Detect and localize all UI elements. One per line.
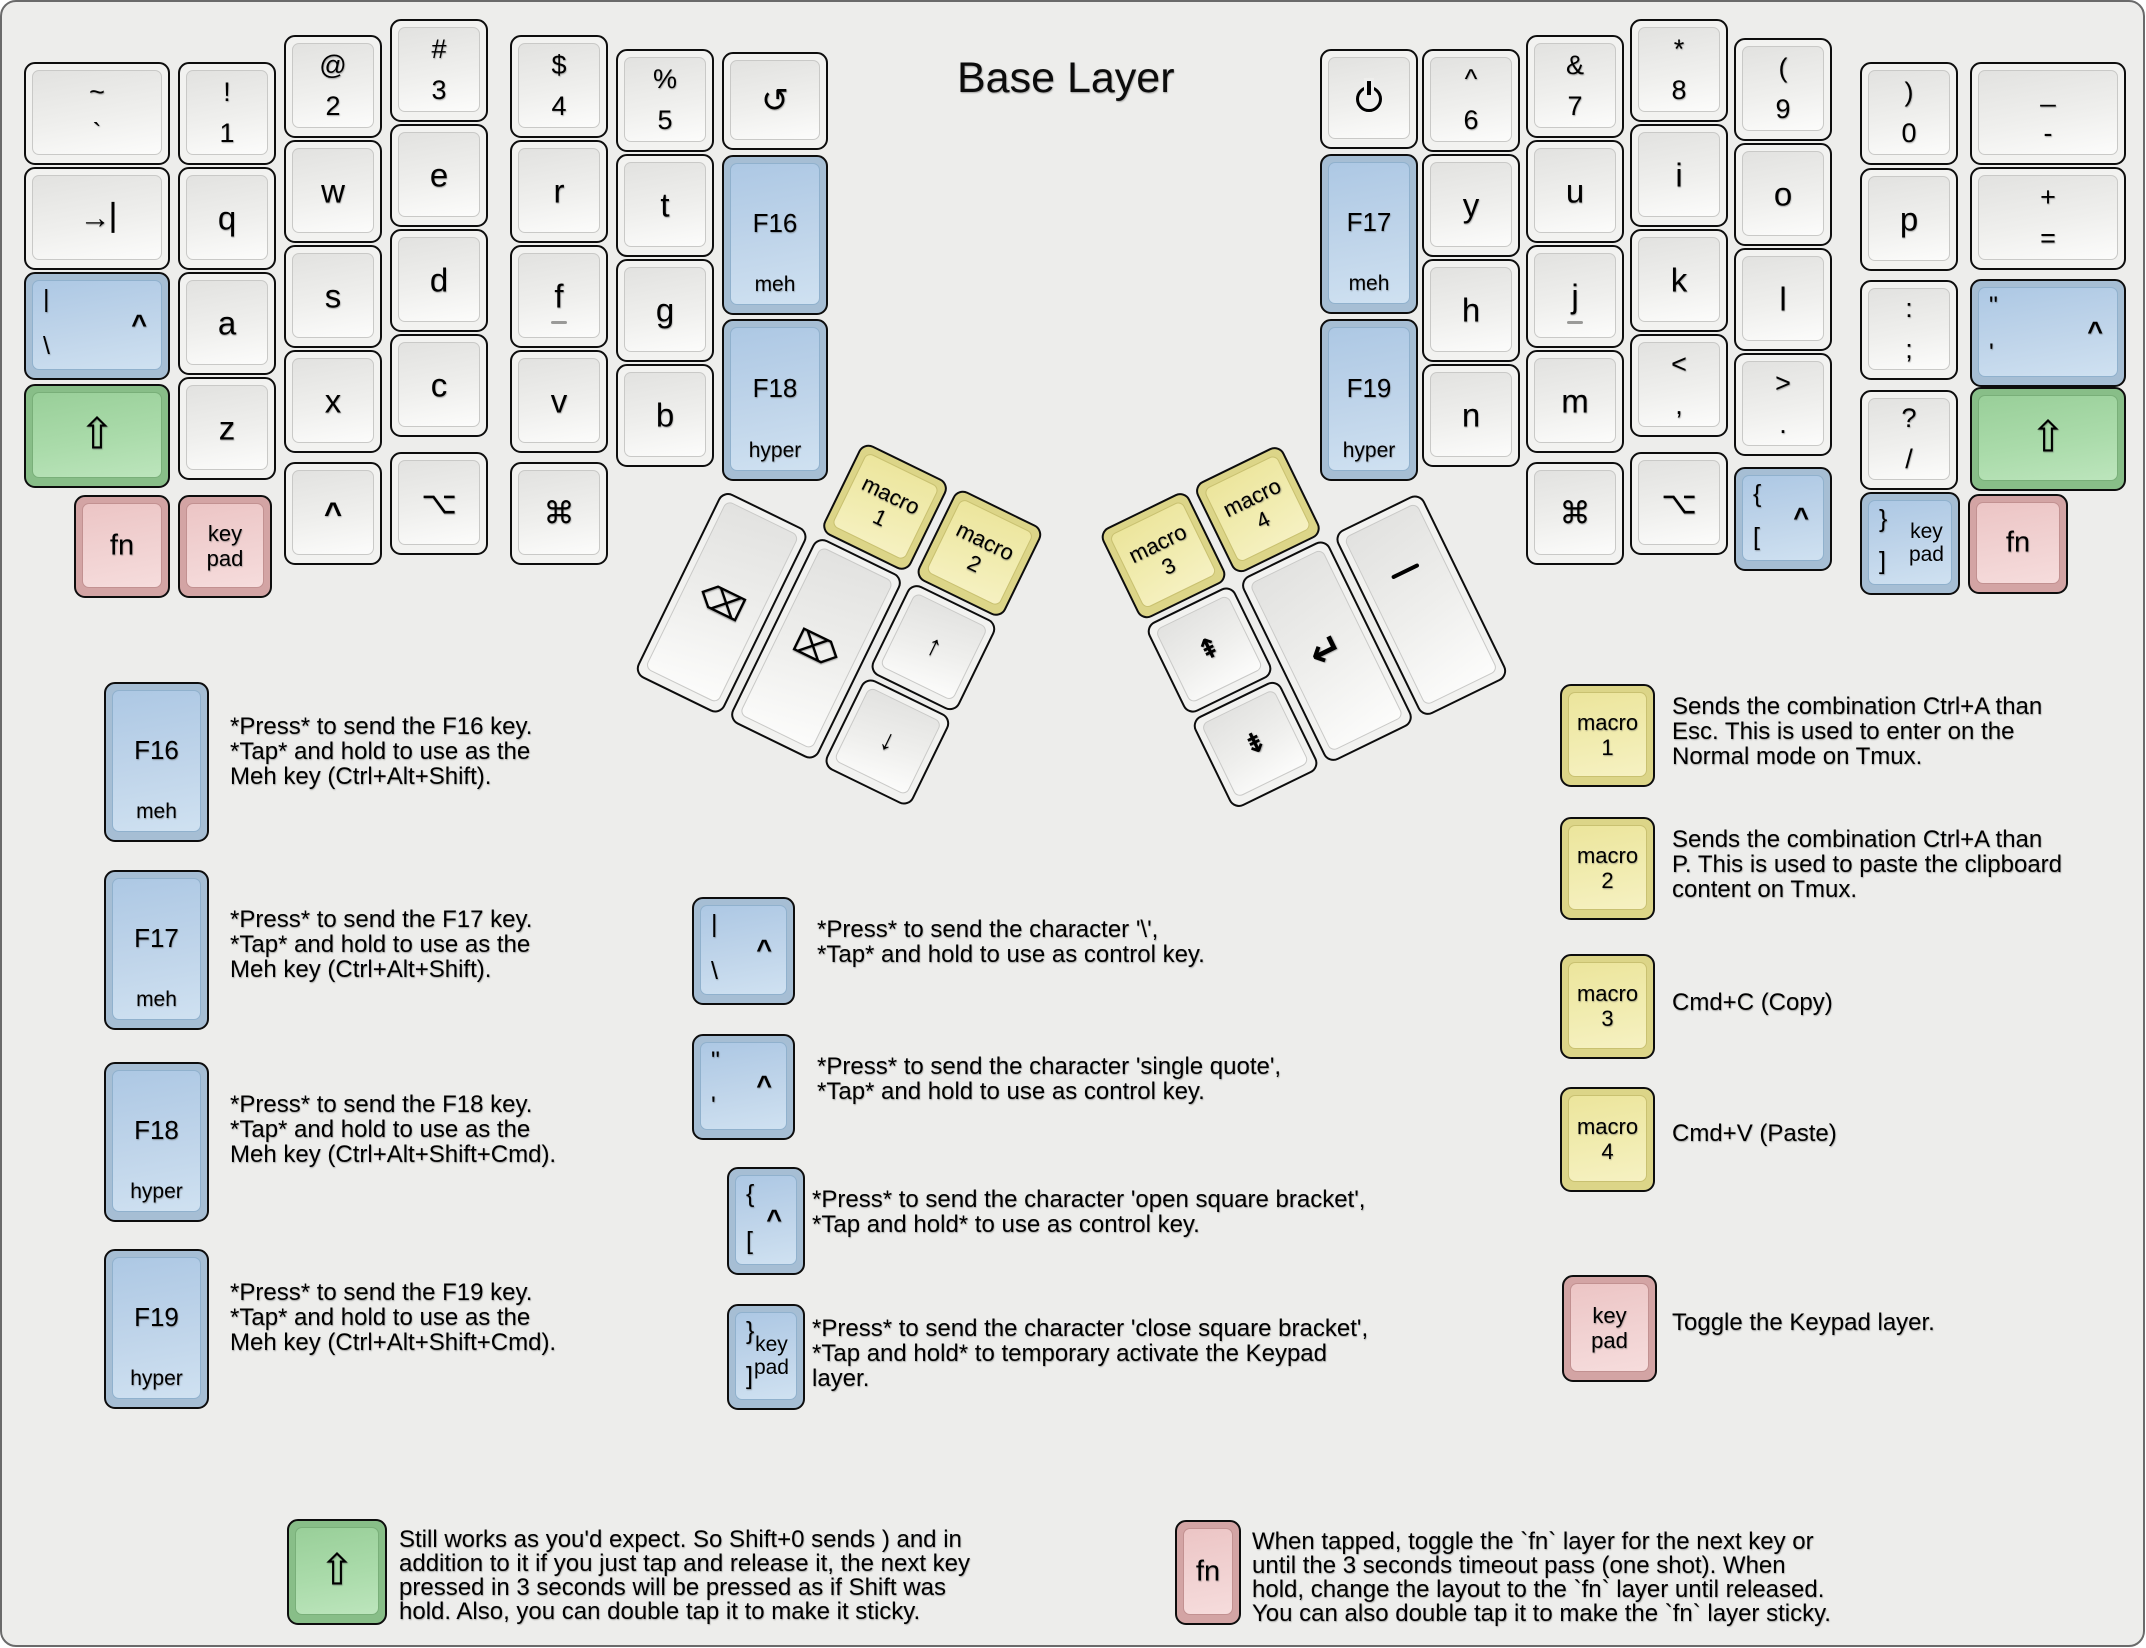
key-2-base-label: 2	[325, 86, 340, 127]
key-9: (9	[1734, 38, 1832, 141]
key-r: r	[510, 140, 608, 243]
key-j: j	[1526, 245, 1624, 348]
key-d-cap: d	[398, 237, 480, 322]
key-macro-4-labels: macro4	[1204, 455, 1310, 562]
key-grave: ~`	[24, 62, 170, 165]
legend-key-f16-sub-label: meh	[113, 800, 200, 824]
key-h-label: h	[1462, 293, 1480, 326]
key-t: t	[616, 154, 714, 257]
key-f17-cap: F17meh	[1328, 162, 1410, 304]
key-semicolon-cap: :;	[1868, 288, 1950, 370]
legend-text-line: *Press* to send the F16 key.	[230, 714, 532, 739]
key-option-right-label: ⌥	[1661, 487, 1697, 518]
key-minus-shift-label: _	[2040, 72, 2055, 113]
legend-key-macro-4-label-0: macro	[1577, 1114, 1638, 1139]
key-5: %5	[616, 49, 714, 152]
legend-text-line: Sends the combination Ctrl+A than	[1672, 694, 2042, 719]
legend-key-bracket-close-keypad-cap: }]keypad	[735, 1312, 797, 1400]
legend-key-keypad-label-0: key	[1592, 1303, 1626, 1328]
key-f16: F16meh	[722, 155, 828, 315]
key-quote-control-control-label: ^	[2087, 319, 2103, 346]
key-command-left: ⌘	[510, 462, 608, 565]
key-u-cap: u	[1534, 148, 1616, 233]
key-j-cap: j	[1534, 253, 1616, 338]
legend-text-line: Meh key (Ctrl+Alt+Shift+Cmd).	[230, 1330, 556, 1355]
key-equals-base-label: =	[2040, 218, 2056, 259]
key-c-cap: c	[398, 342, 480, 427]
legend-key-backslash-control: |\^	[692, 897, 795, 1005]
legend-key-shift: ⇧	[287, 1519, 387, 1625]
key-bracket-close-keypad-side-label: keypad	[1909, 520, 1944, 566]
key-option-left-label: ⌥	[421, 487, 457, 518]
key-e-label: e	[430, 158, 448, 191]
key-f18-label: F18	[753, 375, 798, 401]
key-keypad-left-label-1: pad	[207, 546, 244, 571]
legend-text-line: *Press* to send the F19 key.	[230, 1280, 556, 1305]
legend-text-line: When tapped, toggle the `fn` layer for t…	[1252, 1530, 1831, 1554]
key-bracket-close-keypad: }]keypad	[1860, 492, 1960, 595]
legend-text-line: Cmd+C (Copy)	[1672, 990, 1833, 1015]
legend-key-macro-4-cap: macro4	[1568, 1095, 1647, 1182]
key-c: c	[390, 334, 488, 437]
legend-key-keypad-label-1: pad	[1591, 1328, 1628, 1353]
key-1: !1	[178, 62, 276, 165]
legend-key-f16: F16meh	[104, 682, 209, 842]
key-macro-1-label-1: 1	[869, 504, 891, 532]
key-equals-cap: +=	[1978, 175, 2118, 260]
key-macro-2-label-0: macro	[952, 516, 1018, 565]
key-quote-control-cap: "'^	[1978, 287, 2118, 377]
tab-icon: →	[80, 201, 115, 232]
key-m: m	[1526, 350, 1624, 453]
legend-text-line: content on Tmux.	[1672, 877, 2062, 902]
key-undo-cap: ↺	[730, 60, 820, 140]
legend-key-f16-cap: F16meh	[112, 690, 201, 832]
key-comma-base-label: ,	[1675, 385, 1683, 426]
legend-key-shift-cap: ⇧	[295, 1527, 379, 1615]
key-page-up-label: ⇞	[1192, 631, 1225, 666]
legend-text-line: Toggle the Keypad layer.	[1672, 1310, 1935, 1335]
legend-key-macro-3-label-0: macro	[1577, 981, 1638, 1006]
key-t-cap: t	[624, 162, 706, 247]
key-i-cap: i	[1638, 132, 1720, 217]
key-macro-4-cap: macro4	[1203, 454, 1312, 563]
key-bracket-close-keypad-cap: }]keypad	[1868, 500, 1952, 585]
legend-key-macro-1-cap: macro1	[1568, 692, 1647, 777]
key-e-cap: e	[398, 132, 480, 217]
key-b-cap: b	[624, 372, 706, 457]
legend-key-macro-1: macro1	[1560, 684, 1655, 787]
key-v-label: v	[551, 384, 568, 417]
key-bracket-close-keypad-base-label: ]	[1879, 549, 1886, 574]
key-7: &7	[1526, 35, 1624, 138]
key-4-shift-label: $	[551, 45, 566, 86]
key-undo: ↺	[722, 52, 828, 150]
key-r-cap: r	[518, 148, 600, 233]
key-j-label: j	[1571, 279, 1578, 312]
key-delete-label: ⌦	[788, 623, 844, 673]
key-6-shift-label: ^	[1465, 59, 1478, 100]
legend-key-f18-sub-label: hyper	[113, 1180, 200, 1204]
key-6-labels: ^6	[1431, 58, 1511, 141]
key-bracket-open-control: {[^	[1734, 467, 1832, 571]
key-x-label: x	[325, 384, 342, 417]
key-page-down-label: ⇟	[1238, 726, 1271, 761]
key-macro-3-labels: macro3	[1110, 502, 1216, 609]
key-o-cap: o	[1742, 151, 1824, 236]
key-n: n	[1422, 364, 1520, 467]
key-period-base-label: .	[1779, 404, 1787, 445]
key-period-shift-label: >	[1775, 363, 1791, 404]
key-comma-cap: <,	[1638, 342, 1720, 427]
legend-key-quote-control-shift-label: "	[711, 1049, 720, 1074]
key-g-label: g	[656, 293, 674, 326]
key-backslash-control-shift-label: |	[43, 287, 50, 312]
legend-key-f16-description: *Press* to send the F16 key.*Tap* and ho…	[230, 714, 532, 789]
key-2: @2	[284, 35, 382, 138]
key-8-cap: *8	[1638, 27, 1720, 112]
key-minus-cap: _-	[1978, 70, 2118, 155]
key-2-cap: @2	[292, 43, 374, 128]
legend-key-backslash-control-description: *Press* to send the character '\',*Tap* …	[817, 917, 1205, 967]
legend-text-line: *Tap* and hold to use as the	[230, 1117, 556, 1142]
key-w: w	[284, 140, 382, 243]
key-1-shift-label: !	[223, 72, 231, 113]
key-d-label: d	[430, 263, 448, 296]
space-icon	[1390, 563, 1419, 580]
key-v-cap: v	[518, 358, 600, 443]
key-q-cap: q	[186, 175, 268, 260]
key-x: x	[284, 350, 382, 453]
legend-key-macro-1-label-1: 1	[1601, 735, 1613, 760]
legend-key-bracket-open-control-cap: {[^	[735, 1175, 797, 1265]
key-y-label: y	[1463, 188, 1480, 221]
key-fn-right: fn	[1968, 494, 2068, 594]
key-z-cap: z	[186, 385, 268, 470]
key-0-base-label: 0	[1901, 113, 1916, 154]
key-4-cap: $4	[518, 43, 600, 128]
legend-key-bracket-open-control-shift-label: {	[746, 1182, 754, 1207]
legend-key-f19-description: *Press* to send the F19 key.*Tap* and ho…	[230, 1280, 556, 1355]
key-1-base-label: 1	[219, 113, 234, 154]
key-f19-cap: F19hyper	[1328, 327, 1410, 471]
key-f16-label: F16	[753, 210, 798, 236]
key-2-shift-label: @	[319, 45, 346, 86]
key-o-label: o	[1774, 177, 1792, 210]
key-f16-sub-label: meh	[731, 273, 819, 297]
key-a-label: a	[218, 306, 236, 339]
key-7-shift-label: &	[1566, 45, 1584, 86]
key-keypad-left-cap: keypad	[186, 503, 264, 588]
key-7-labels: &7	[1535, 44, 1615, 127]
key-equals-shift-label: +	[2040, 177, 2056, 218]
key-comma: <,	[1630, 334, 1728, 437]
key-9-base-label: 9	[1775, 89, 1790, 130]
key-macro-4-label-1: 4	[1252, 506, 1274, 534]
key-9-cap: (9	[1742, 46, 1824, 131]
key-s: s	[284, 245, 382, 348]
key-4: $4	[510, 35, 608, 138]
legend-key-bracket-close-keypad: }]keypad	[727, 1304, 805, 1410]
legend-key-macro-2-label-0: macro	[1577, 843, 1638, 868]
key-control-left-label: ^	[324, 497, 342, 528]
key-f17: F17meh	[1320, 154, 1418, 314]
key-macro-1-cap: macro1	[831, 452, 940, 561]
key-period: >.	[1734, 353, 1832, 456]
key-control-left-cap: ^	[292, 470, 374, 555]
legend-key-quote-control-cap: "'^	[700, 1042, 787, 1130]
key-semicolon-labels: :;	[1869, 289, 1949, 369]
key-equals-labels: +=	[1979, 176, 2117, 259]
key-power	[1320, 49, 1418, 149]
key-grave-cap: ~`	[32, 70, 162, 155]
legend-key-keypad: keypad	[1562, 1275, 1657, 1382]
legend-key-backslash-control-cap: |\^	[700, 905, 787, 995]
key-fn-left-label: fn	[110, 531, 134, 560]
key-command-right: ⌘	[1526, 462, 1624, 565]
key-l-label: l	[1779, 282, 1786, 315]
key-7-base-label: 7	[1567, 86, 1582, 127]
key-3-labels: #3	[399, 28, 479, 111]
key-backslash-control-base-label: \	[43, 334, 50, 359]
key-8-labels: *8	[1639, 28, 1719, 111]
key-slash: ?/	[1860, 390, 1958, 490]
key-semicolon-shift-label: :	[1905, 288, 1913, 329]
legend-key-f18: F18hyper	[104, 1062, 209, 1222]
key-p-label: p	[1900, 202, 1918, 235]
legend-key-f19: F19hyper	[104, 1249, 209, 1409]
key-p: p	[1860, 168, 1958, 271]
key-equals: +=	[1970, 167, 2126, 270]
legend-key-f18-description: *Press* to send the F18 key.*Tap* and ho…	[230, 1092, 556, 1167]
key-5-cap: %5	[624, 57, 706, 142]
legend-key-f17-cap: F17meh	[112, 878, 201, 1020]
key-keypad-left: keypad	[178, 495, 272, 598]
key-option-left-cap: ⌥	[398, 460, 480, 545]
key-z: z	[178, 377, 276, 480]
page-title: Base Layer	[957, 54, 1175, 103]
key-5-base-label: 5	[657, 100, 672, 141]
key-minus-base-label: -	[2044, 113, 2053, 154]
legend-key-macro-1-description: Sends the combination Ctrl+A thanEsc. Th…	[1672, 694, 2042, 769]
legend-key-f19-cap: F19hyper	[112, 1257, 201, 1399]
key-right-shift-cap: ⇧	[1978, 395, 2118, 481]
legend-text-line: Still works as you'd expect. So Shift+0 …	[399, 1528, 970, 1552]
key-4-base-label: 4	[551, 86, 566, 127]
key-h: h	[1422, 259, 1520, 362]
legend-text-line: *Press* to send the character 'close squ…	[812, 1316, 1368, 1341]
legend-text-line: Normal mode on Tmux.	[1672, 744, 2042, 769]
key-h-cap: h	[1430, 267, 1512, 352]
key-a-cap: a	[186, 280, 268, 365]
legend-key-bracket-open-control-control-label: ^	[766, 1207, 782, 1234]
legend-key-macro-4-label-1: 4	[1601, 1139, 1613, 1164]
legend-key-bracket-close-keypad-side-label: keypad	[754, 1333, 789, 1379]
legend-key-backslash-control-shift-label: |	[711, 912, 718, 937]
key-left-shift-cap: ⇧	[32, 392, 162, 478]
key-macro-3-cap: macro3	[1109, 500, 1218, 609]
legend-key-backslash-control-base-label: \	[711, 959, 718, 984]
key-w-label: w	[321, 174, 345, 207]
legend-key-macro-2-description: Sends the combination Ctrl+A thanP. This…	[1672, 827, 2062, 902]
legend-text-line: *Tap and hold* to use as control key.	[812, 1212, 1365, 1237]
key-u: u	[1526, 140, 1624, 243]
key-keypad-left-labels: keypad	[187, 504, 263, 587]
legend-key-keypad-description: Toggle the Keypad layer.	[1672, 1310, 1935, 1335]
legend-key-macro-4-description: Cmd+V (Paste)	[1672, 1121, 1837, 1146]
key-arrow-down-cap: ↓	[833, 687, 942, 796]
legend-key-macro-1-label-0: macro	[1577, 710, 1638, 735]
key-f19-sub-label: hyper	[1329, 439, 1409, 463]
key-s-label: s	[325, 279, 342, 312]
key-arrow-down-label: ↓	[875, 725, 901, 757]
key-f: f	[510, 245, 608, 348]
key-fn-right-cap: fn	[1976, 502, 2060, 584]
key-control-left: ^	[284, 462, 382, 565]
key-macro-1-label-0: macro	[858, 470, 924, 519]
key-y-cap: y	[1430, 162, 1512, 247]
legend-key-quote-control-control-label: ^	[756, 1073, 772, 1100]
legend-key-macro-2-labels: macro2	[1569, 826, 1646, 909]
key-5-labels: %5	[625, 58, 705, 141]
legend-key-bracket-open-control-base-label: [	[746, 1229, 753, 1254]
key-semicolon-base-label: ;	[1905, 329, 1913, 370]
key-3-base-label: 3	[431, 70, 446, 111]
key-tab-cap: →	[32, 175, 162, 260]
key-bracket-open-control-cap: {[^	[1742, 475, 1824, 561]
key-n-cap: n	[1430, 372, 1512, 457]
legend-text-line: until the 3 seconds timeout pass (one sh…	[1252, 1554, 1831, 1578]
key-c-label: c	[431, 368, 448, 401]
key-9-shift-label: (	[1779, 48, 1788, 89]
key-7-cap: &7	[1534, 43, 1616, 128]
key-w-cap: w	[292, 148, 374, 233]
legend-key-macro-3-label-1: 3	[1601, 1006, 1613, 1031]
key-v: v	[510, 350, 608, 453]
key-l-cap: l	[1742, 256, 1824, 341]
key-comma-shift-label: <	[1671, 344, 1687, 385]
legend-key-fn-description: When tapped, toggle the `fn` layer for t…	[1252, 1530, 1831, 1626]
key-tab: →	[24, 167, 170, 270]
key-option-right-cap: ⌥	[1638, 460, 1720, 545]
legend-text-line: *Press* to send the character 'single qu…	[817, 1054, 1281, 1079]
key-f17-sub-label: meh	[1329, 272, 1409, 296]
key-f16-cap: F16meh	[730, 163, 820, 305]
legend-text-line: *Tap* and hold to use as the	[230, 1305, 556, 1330]
key-f17-label: F17	[1347, 209, 1392, 235]
key-power-cap	[1328, 57, 1410, 139]
legend-text-line: addition to it if you just tap and relea…	[399, 1552, 970, 1576]
key-1-cap: !1	[186, 70, 268, 155]
legend-text-line: *Press* to send the F18 key.	[230, 1092, 556, 1117]
legend-text-line: Meh key (Ctrl+Alt+Shift).	[230, 764, 532, 789]
legend-text-line: *Tap* and hold to use as control key.	[817, 942, 1205, 967]
key-f18-cap: F18hyper	[730, 327, 820, 471]
legend-key-fn-label: fn	[1196, 1557, 1220, 1586]
key-o: o	[1734, 143, 1832, 246]
legend-key-keypad-labels: keypad	[1571, 1284, 1648, 1371]
legend-key-macro-3: macro3	[1560, 954, 1655, 1059]
legend-key-macro-4-labels: macro4	[1569, 1096, 1646, 1181]
legend-key-quote-control-base-label: '	[711, 1094, 716, 1119]
legend-text-line: *Tap* and hold to use as control key.	[817, 1079, 1281, 1104]
key-slash-shift-label: ?	[1901, 398, 1916, 439]
legend-key-bracket-close-keypad-base-label: ]	[746, 1364, 753, 1389]
key-quote-control-shift-label: "	[1989, 294, 1998, 319]
legend-key-keypad-cap: keypad	[1570, 1283, 1649, 1372]
legend-text-line: *Tap* and hold to use as the	[230, 739, 532, 764]
legend-key-macro-1-labels: macro1	[1569, 693, 1646, 776]
legend-text-line: P. This is used to paste the clipboard	[1672, 852, 2062, 877]
key-fn-right-label: fn	[2006, 529, 2030, 558]
legend-key-shift-description: Still works as you'd expect. So Shift+0 …	[399, 1528, 970, 1624]
key-9-labels: (9	[1743, 47, 1823, 130]
key-page-up-cap: ⇞	[1155, 595, 1264, 704]
legend-key-f19-sub-label: hyper	[113, 1367, 200, 1391]
key-z-label: z	[219, 411, 236, 444]
key-bracket-open-control-control-label: ^	[1793, 505, 1809, 532]
key-macro-3-label-0: macro	[1125, 519, 1191, 568]
legend-key-shift-label: ⇧	[319, 1550, 355, 1593]
key-a: a	[178, 272, 276, 375]
legend-text-line: *Press* to send the character 'open squa…	[812, 1187, 1365, 1212]
key-backspace-label: ⌫	[694, 577, 750, 627]
key-8-base-label: 8	[1671, 70, 1686, 111]
key-b-label: b	[656, 398, 674, 431]
key-minus-labels: _-	[1979, 71, 2117, 154]
key-backslash-control-cap: |\^	[32, 280, 162, 370]
key-bracket-open-control-shift-label: {	[1753, 482, 1761, 507]
key-macro-1-labels: macro1	[832, 453, 938, 560]
key-bracket-close-keypad-shift-label: }	[1879, 507, 1887, 532]
key-macro-4-label-0: macro	[1219, 473, 1285, 522]
legend-text-line: pressed in 3 seconds will be pressed as …	[399, 1576, 970, 1600]
key-t-label: t	[660, 188, 669, 221]
key-right-shift: ⇧	[1970, 387, 2126, 491]
key-command-left-cap: ⌘	[518, 470, 600, 555]
key-0-shift-label: )	[1905, 72, 1914, 113]
keyboard-layout-diagram: Base Layer ~`!1@2#3$4%5↺→qwertF16meh|\^a…	[0, 0, 2145, 1647]
key-b: b	[616, 364, 714, 467]
key-0-cap: )0	[1868, 70, 1950, 155]
key-k-cap: k	[1638, 237, 1720, 322]
power-icon	[1356, 86, 1382, 112]
key-8: *8	[1630, 19, 1728, 122]
key-i: i	[1630, 124, 1728, 227]
legend-key-backslash-control-control-label: ^	[756, 937, 772, 964]
key-option-right: ⌥	[1630, 452, 1728, 555]
legend-key-fn-cap: fn	[1183, 1528, 1233, 1615]
key-k: k	[1630, 229, 1728, 332]
legend-text-line: *Tap* and hold to use as the	[230, 932, 532, 957]
legend-text-line: Meh key (Ctrl+Alt+Shift+Cmd).	[230, 1142, 556, 1167]
key-macro-3-label-1: 3	[1158, 552, 1180, 580]
key-comma-labels: <,	[1639, 343, 1719, 426]
key-macro-2-label-1: 2	[963, 550, 985, 578]
legend-key-quote-control: "'^	[692, 1034, 795, 1140]
key-8-shift-label: *	[1674, 29, 1685, 70]
legend-key-bracket-open-control-description: *Press* to send the character 'open squa…	[812, 1187, 1365, 1237]
key-l: l	[1734, 248, 1832, 351]
key-f18: F18hyper	[722, 319, 828, 481]
key-m-label: m	[1561, 384, 1589, 417]
legend-text-line: layer.	[812, 1366, 1368, 1391]
key-enter-label: ↵	[1303, 625, 1351, 676]
legend-key-macro-2-cap: macro2	[1568, 825, 1647, 910]
key-r-label: r	[554, 174, 565, 207]
legend-text-line: *Tap and hold* to temporary activate the…	[812, 1341, 1368, 1366]
key-f-label: f	[554, 279, 563, 312]
